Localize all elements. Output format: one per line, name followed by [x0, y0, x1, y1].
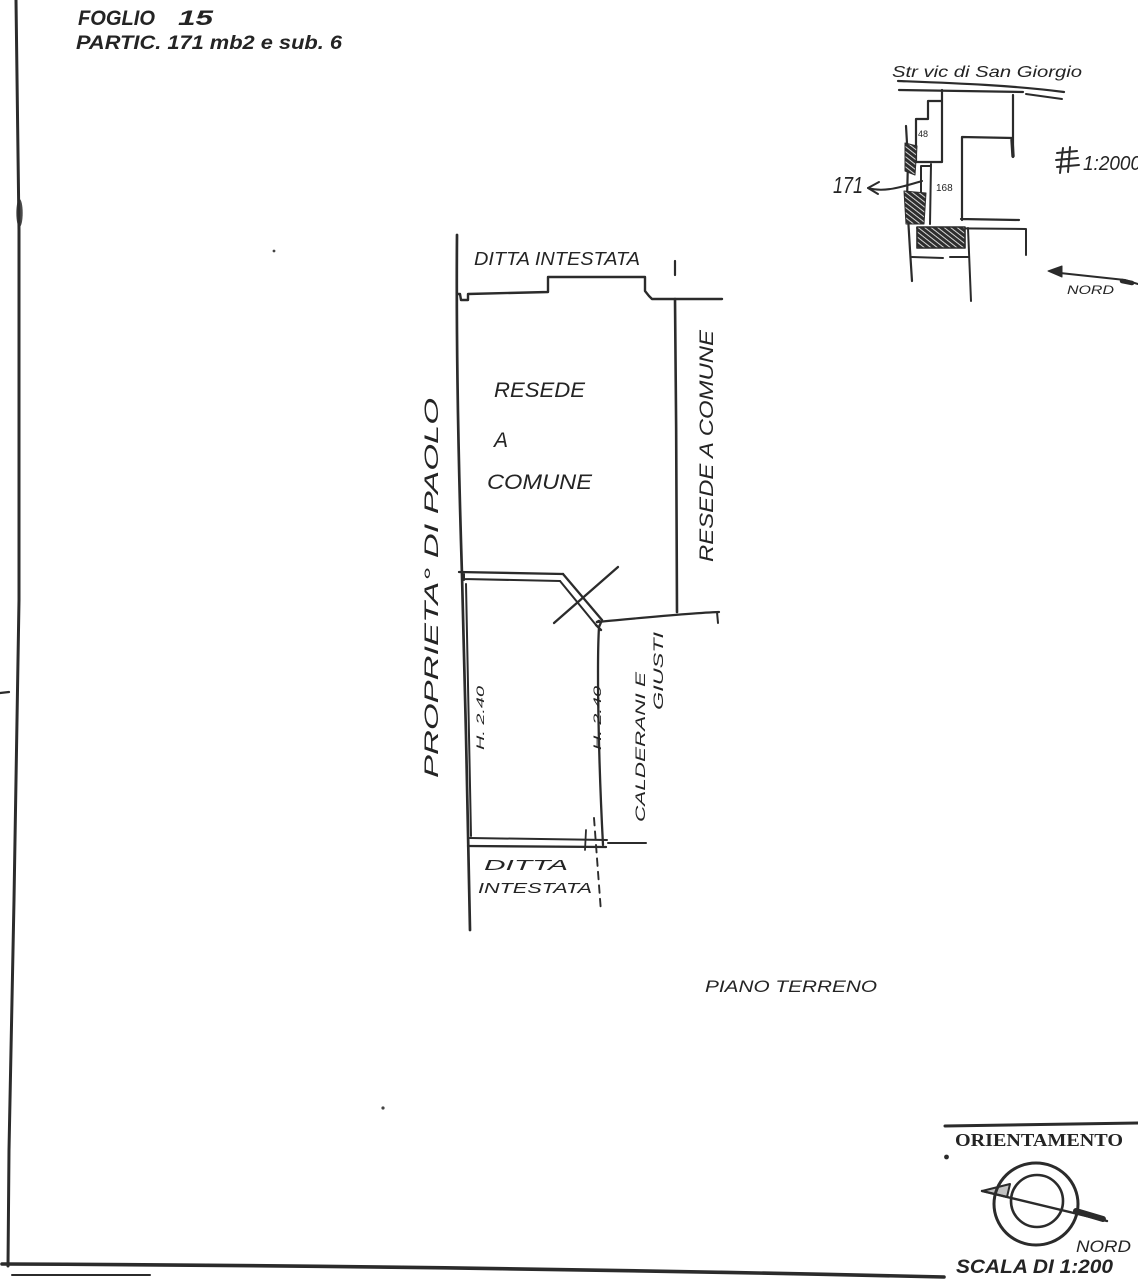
svg-text:48: 48 [918, 129, 928, 139]
svg-text:GIUSTI: GIUSTI [650, 632, 666, 710]
svg-text:DITTA: DITTA [484, 857, 568, 874]
svg-text:INTESTATA: INTESTATA [478, 880, 592, 897]
svg-text:NORD: NORD [1076, 1238, 1131, 1256]
svg-text:A: A [492, 429, 508, 452]
svg-text:Str vic di San Giorgio: Str vic di San Giorgio [892, 64, 1082, 81]
svg-text:COMUNE: COMUNE [487, 471, 593, 494]
svg-text:1:2000: 1:2000 [1083, 153, 1138, 175]
svg-text:H. 2.40: H. 2.40 [592, 684, 604, 750]
svg-text:PIANO TERRENO: PIANO TERRENO [705, 977, 877, 996]
svg-text:CALDERANI E: CALDERANI E [632, 671, 648, 822]
svg-text:171: 171 [833, 172, 863, 198]
svg-text:H. 2.40: H. 2.40 [475, 684, 487, 750]
svg-text:SCALA DI 1:200: SCALA DI 1:200 [956, 1257, 1113, 1278]
svg-text:RESEDE: RESEDE [494, 379, 586, 402]
svg-text:DITTA INTESTATA: DITTA INTESTATA [474, 249, 640, 269]
svg-text:RESEDE A COMUNE: RESEDE A COMUNE [697, 330, 718, 562]
svg-text:FOGLIO: FOGLIO [78, 7, 155, 30]
svg-text:15: 15 [178, 7, 213, 30]
svg-text:168: 168 [936, 183, 953, 194]
svg-text:PROPRIETA° DI PAOLO: PROPRIETA° DI PAOLO [422, 398, 443, 778]
svg-text:ORIENTAMENTO: ORIENTAMENTO [955, 1130, 1123, 1150]
svg-text:NORD: NORD [1067, 283, 1114, 297]
svg-text:PARTIC. 171 mb2 e sub. 6: PARTIC. 171 mb2 e sub. 6 [76, 33, 342, 54]
